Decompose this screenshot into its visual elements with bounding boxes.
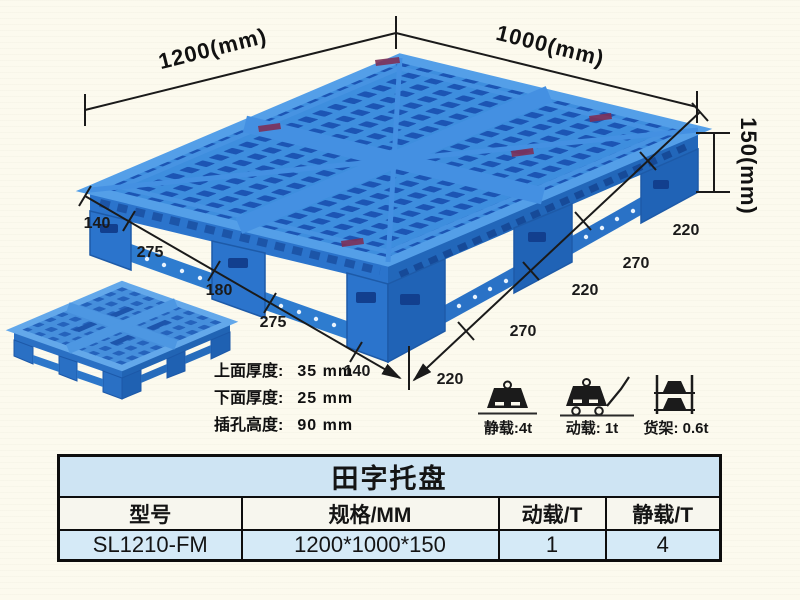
right-seg-220a: 220 — [437, 371, 464, 388]
pallet-thumbnail-image — [14, 284, 230, 399]
right-seg-270a: 270 — [510, 323, 537, 340]
height-dimension-label: 150(mm) — [736, 117, 761, 214]
header-spec-mm: 规格/MM — [242, 497, 499, 530]
width-dimension-label: 1000(mm) — [494, 20, 607, 71]
note-fork-height: 插孔高度: 90 mm — [214, 412, 404, 439]
static-load-icon — [478, 382, 537, 414]
right-seg-270b: 270 — [623, 255, 650, 272]
rack-load-label: 货架: 0.6t — [643, 419, 708, 437]
thickness-notes: 上面厚度: 35 mm 下面厚度: 25 mm 插孔高度: 90 mm — [214, 358, 404, 439]
length-dimension-label: 1200(mm) — [156, 23, 269, 74]
cell-dynamic-load: 1 — [499, 530, 606, 561]
right-seg-220c: 220 — [673, 222, 700, 239]
static-load-label: 静载:4t — [484, 419, 532, 437]
left-seg-180: 180 — [206, 282, 233, 299]
right-seg-220b: 220 — [572, 282, 599, 299]
dynamic-load-label: 动载: 1t — [566, 419, 619, 437]
left-seg-275a: 275 — [137, 244, 164, 261]
spec-table-data-row: SL1210-FM 1200*1000*150 1 4 — [59, 530, 721, 561]
note-label: 下面厚度: — [214, 385, 283, 412]
note-value: 90 mm — [297, 412, 353, 439]
left-seg-140a: 140 — [84, 215, 111, 232]
dynamic-load-icon — [560, 377, 634, 416]
load-capacity-icons: 静载:4t 动载: 1t 货架: 0 — [478, 375, 709, 437]
note-value: 35 mm — [297, 358, 353, 385]
rack-load-icon — [654, 375, 695, 414]
cell-static-load: 4 — [606, 530, 721, 561]
header-model: 型号 — [59, 497, 242, 530]
note-top-thickness: 上面厚度: 35 mm — [214, 358, 404, 385]
header-dynamic-load: 动载/T — [499, 497, 606, 530]
note-label: 上面厚度: — [214, 358, 283, 385]
cell-spec-mm: 1200*1000*150 — [242, 530, 499, 561]
note-bottom-thickness: 下面厚度: 25 mm — [214, 385, 404, 412]
note-value: 25 mm — [297, 385, 353, 412]
product-title: 田字托盘 — [59, 456, 721, 498]
pallet-product-sheet: 1200(mm) 1000(mm) 150(mm) 140 275 180 27… — [0, 0, 800, 600]
header-static-load: 静载/T — [606, 497, 721, 530]
spec-table-header-row: 型号 规格/MM 动载/T 静载/T — [59, 497, 721, 530]
spec-table: 田字托盘 型号 规格/MM 动载/T 静载/T SL1210-FM 1200*1… — [57, 454, 722, 562]
left-seg-275b: 275 — [260, 314, 287, 331]
spec-table-title-row: 田字托盘 — [59, 456, 721, 498]
note-label: 插孔高度: — [214, 412, 283, 439]
cell-model: SL1210-FM — [59, 530, 242, 561]
